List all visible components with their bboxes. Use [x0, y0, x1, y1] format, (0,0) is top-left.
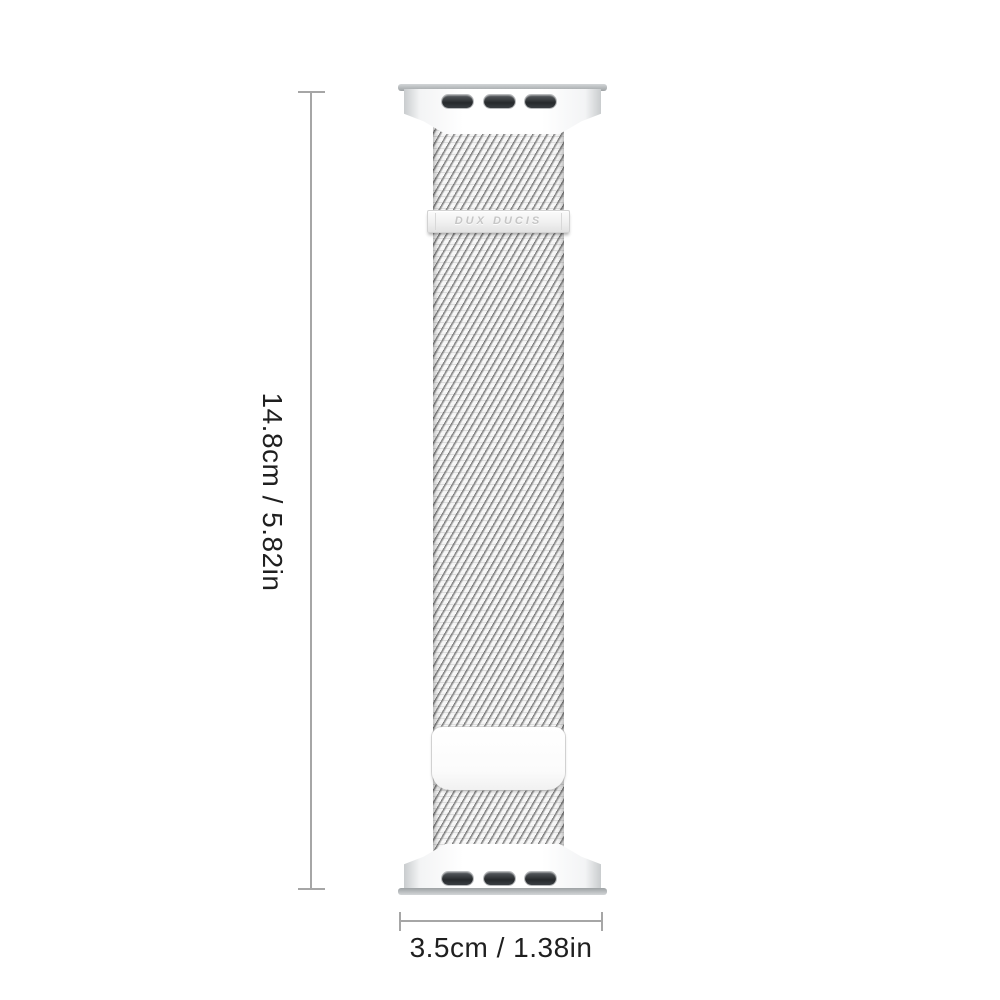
connector-slot	[525, 95, 556, 108]
connector-slot	[484, 872, 515, 885]
connector-slot	[484, 95, 515, 108]
height-dimension-label: 14.8cm / 5.82in	[252, 312, 292, 672]
height-dimension-tick-bottom	[298, 888, 325, 890]
lug-bar-bottom	[398, 888, 607, 895]
magnetic-clasp-plate	[432, 727, 565, 790]
height-dimension-tick-top	[298, 91, 325, 93]
brand-plate: DUX DUCIS	[427, 210, 570, 233]
connector-slot	[525, 872, 556, 885]
width-dimension-label: 3.5cm / 1.38in	[390, 928, 612, 968]
connector-slot	[442, 95, 473, 108]
brand-engraving: DUX DUCIS	[455, 215, 543, 227]
connector-slot	[442, 872, 473, 885]
width-dimension-line	[400, 920, 602, 922]
height-dimension-line	[310, 92, 312, 889]
product-dimension-image: 14.8cm / 5.82in DUX DUCIS	[0, 0, 1000, 1000]
